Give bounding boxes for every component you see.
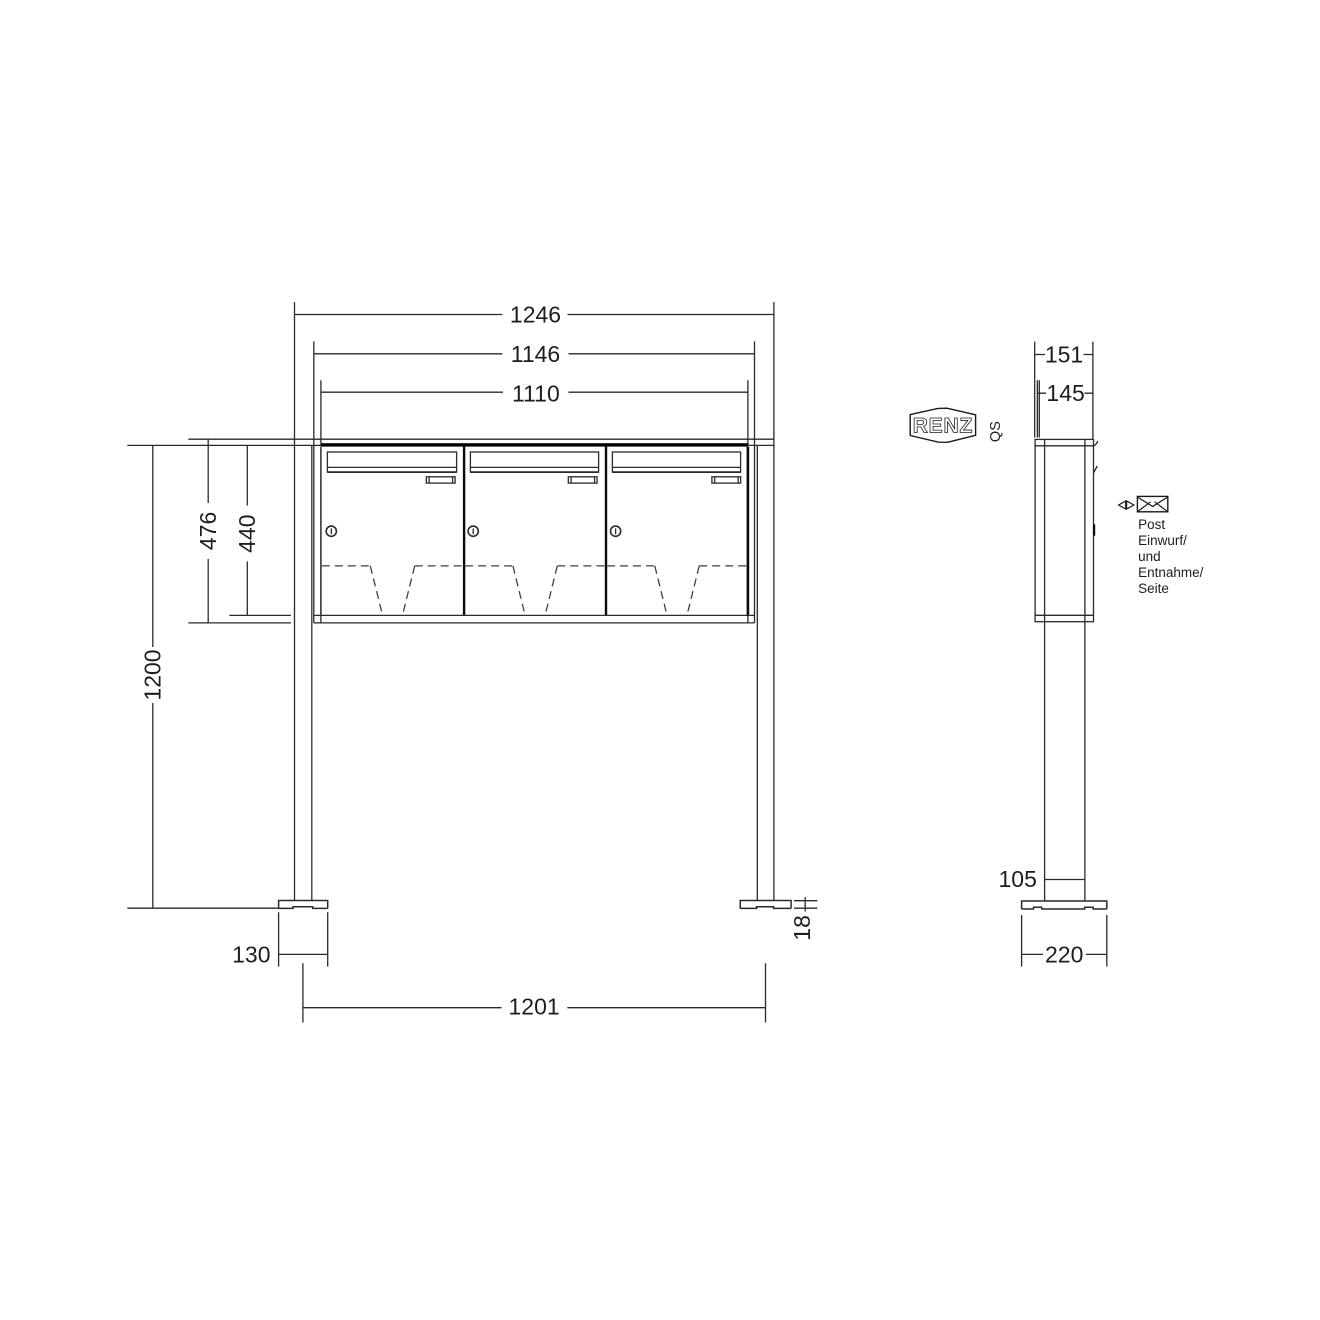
svg-text:Einwurf/: Einwurf/ [1138, 533, 1187, 548]
svg-text:151: 151 [1045, 342, 1083, 368]
svg-text:105: 105 [999, 866, 1037, 892]
svg-text:1200: 1200 [140, 649, 166, 700]
svg-text:18: 18 [789, 915, 815, 941]
svg-text:130: 130 [232, 942, 270, 968]
svg-text:1246: 1246 [510, 302, 561, 328]
svg-text:476: 476 [195, 512, 221, 550]
svg-text:QS: QS [988, 421, 1004, 442]
svg-text:1201: 1201 [509, 994, 560, 1020]
svg-text:Post: Post [1138, 517, 1165, 532]
svg-text:145: 145 [1046, 380, 1084, 406]
svg-text:1146: 1146 [511, 341, 560, 367]
svg-text:Seite: Seite [1138, 581, 1169, 596]
svg-text:RENZ: RENZ [913, 415, 973, 438]
svg-text:440: 440 [234, 515, 260, 553]
svg-text:Entnahme/: Entnahme/ [1138, 565, 1204, 580]
svg-text:220: 220 [1045, 941, 1083, 967]
svg-text:und: und [1138, 549, 1161, 564]
svg-text:1110: 1110 [512, 381, 560, 407]
